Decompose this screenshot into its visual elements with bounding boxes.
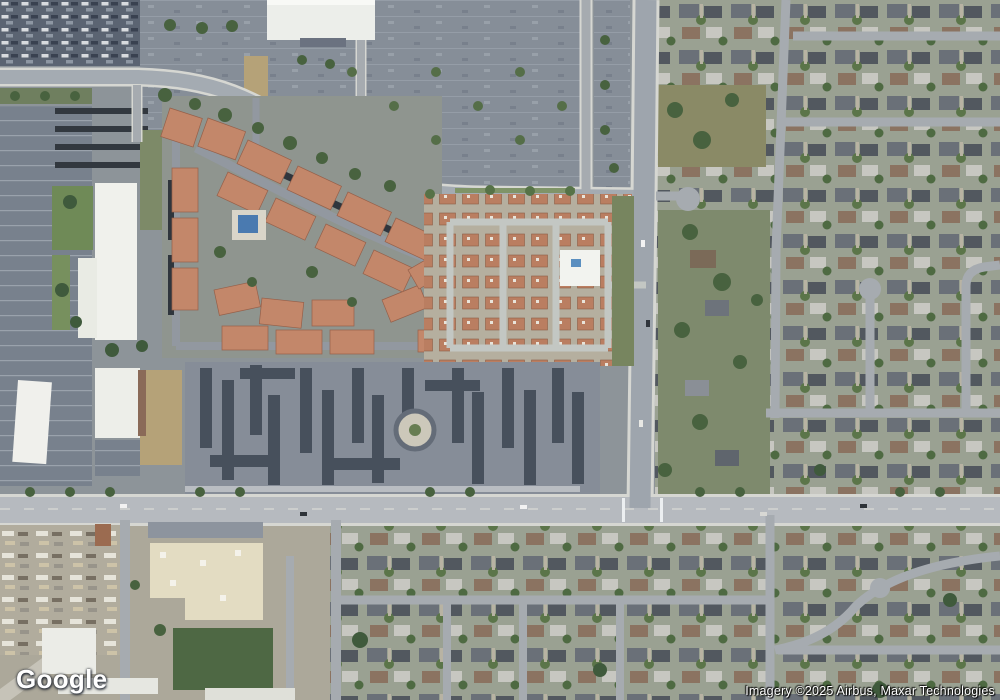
clubhouse [560,250,600,286]
satellite-imagery [0,0,1000,700]
office-building [95,183,137,340]
vacant-lots [658,85,770,500]
swimming-pool [238,215,258,233]
store-entrance-canopy [300,38,346,47]
apartment-complex-gray [185,362,600,494]
retail-store [267,0,375,47]
cottage-community [424,194,646,366]
apartment-complex-terracotta [161,96,450,358]
midleft-commercial [12,368,182,476]
satellite-map-viewport[interactable]: Google Imagery ©2025 Airbus, Maxar Techn… [0,0,1000,700]
google-logo[interactable]: Google [16,666,107,692]
imagery-attribution: Imagery ©2025 Airbus, Maxar Technologies [745,685,995,698]
